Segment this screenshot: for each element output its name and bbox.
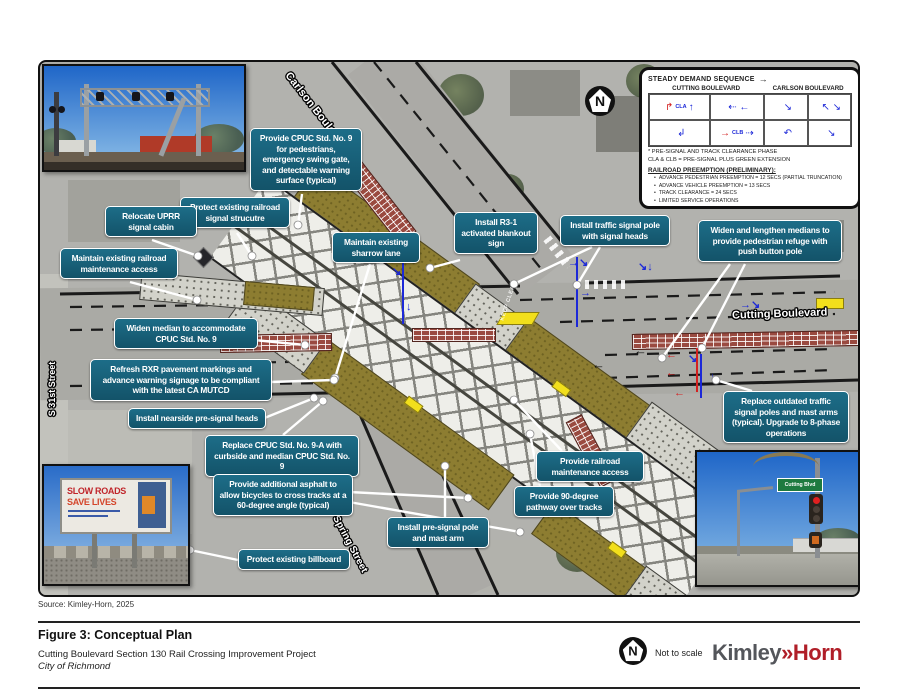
red-arrow-icon: ←: [666, 350, 677, 361]
callout-cpuc-std9-ped: Provide CPUC Std. No. 9 for pedestrians,…: [250, 128, 362, 191]
pedestrian-signal-head: [809, 532, 822, 548]
legend-cell: ↶: [764, 120, 807, 146]
billboard-fineprint: [68, 515, 108, 517]
right-arrow-icon: →: [759, 74, 768, 84]
signal-arrow-icon: ↘: [392, 267, 401, 278]
crosswalk-marking: [585, 280, 625, 289]
figure-client: City of Richmond: [38, 661, 110, 672]
legend-blue-arrow: ↶: [784, 128, 792, 139]
legend-blue-arrow: ⇢: [745, 128, 753, 139]
signal-sequence-legend: STEADY DEMAND SEQUENCE → CUTTING BOULEVA…: [639, 67, 860, 209]
legend-red-arrow: →: [720, 128, 730, 139]
north-letter: N: [585, 93, 615, 109]
gantry-signal: [166, 92, 174, 101]
logo-horn: Horn: [793, 640, 842, 665]
preemption-item: ADVANCE PEDESTRIAN PREEMPTION = 12 SECS …: [654, 175, 852, 183]
ped-signal-light: [812, 536, 819, 544]
legend-preemption-list: ADVANCE PEDESTRIAN PREEMPTION = 12 SECS …: [654, 175, 852, 205]
legend-grid: ↱CLA↑ ⇠ ← ↘ ↖ ↘ ↲ →CLB⇢ ↶ ↘: [648, 93, 852, 147]
legend-cell: ↘: [808, 120, 851, 146]
preemption-item: LIMITED SERVICE OPERATIONS: [654, 198, 852, 206]
legend-footnote-1: * PRE-SIGNAL AND TRACK CLEARANCE PHASE: [648, 149, 852, 157]
legend-cell-label: CLA: [675, 104, 686, 110]
callout-install-traffic-signal-pole: Install traffic signal pole with signal …: [560, 215, 670, 246]
legend-title: STEADY DEMAND SEQUENCE: [648, 76, 755, 83]
logo-chevrons-icon: »: [781, 640, 793, 665]
source-note: Source: Kimley-Horn, 2025: [38, 600, 134, 609]
callout-maintain-sharrow-lane: Maintain existing sharrow lane: [332, 232, 420, 263]
callout-refresh-rxr-markings: Refresh RXR pavement markings and advanc…: [90, 359, 272, 401]
billboard-text-1: SLOW ROADS: [67, 486, 126, 496]
signal-arrow-icon: →: [580, 288, 591, 299]
divider-bottom: [38, 687, 860, 689]
green-light: [813, 515, 820, 522]
crossing-signal-head: [58, 106, 65, 113]
legend-red-arrow: ↱: [665, 102, 673, 113]
north-letter: N: [619, 644, 647, 659]
leader-line: [190, 550, 238, 560]
red-arrow-icon: ←: [666, 368, 677, 379]
callout-protect-billboard: Protect existing billboard: [238, 549, 350, 570]
billboard-fineprint: [68, 510, 120, 512]
callout-additional-asphalt-bicycles: Provide additional asphalt to allow bicy…: [213, 474, 353, 516]
callout-provide-rr-maintenance-access: Provide railroad maintenance access: [536, 451, 644, 482]
yellow-light: [813, 506, 820, 513]
street-lamp-pole: [737, 490, 740, 556]
legend-blue-arrow: ↑: [689, 102, 694, 113]
crossing-signal-pole: [54, 92, 59, 156]
crossing-signal-head: [49, 106, 56, 113]
callout-pathway-over-tracks: Provide 90-degree pathway over tracks: [514, 486, 614, 517]
legend-preemption-title: RAILROAD PREEMPTION (PRELIMINARY):: [648, 167, 852, 174]
callout-install-r3-1-blankout: Install R3-1 activated blankout sign: [454, 212, 538, 254]
legend-cell: ↲: [649, 120, 710, 146]
legend-cell: ↱CLA↑: [649, 94, 710, 120]
figure-title: Figure 3: Conceptual Plan: [38, 628, 192, 642]
signal-arrow-icon: ↓: [406, 302, 412, 313]
signal-pole-line: [700, 354, 702, 398]
legend-cell-label: CLB: [732, 130, 743, 136]
legend-title-row: STEADY DEMAND SEQUENCE →: [648, 74, 852, 84]
brick-median: [412, 328, 496, 342]
traffic-signal-head: [809, 494, 823, 524]
legend-cell: →CLB⇢: [710, 120, 765, 146]
red-arrow-icon: ←: [674, 388, 685, 399]
red-light: [813, 497, 820, 504]
legend-cell: ↖ ↘: [808, 94, 851, 120]
white-building: [54, 140, 96, 152]
red-building: [140, 136, 212, 152]
legend-col-carlson: CARLSON BOULEVARD: [764, 85, 852, 92]
figure-page: KEEP CLEAR ↘ ↓ →↘ → ↘↓ ↘ →↘ ↓ ← ← ← ← ← …: [0, 0, 897, 692]
preemption-item: ADVANCE VEHICLE PREEMPTION = 13 SECS: [654, 183, 852, 191]
preemption-item: TRACK CLEARANCE = 24 SECS: [654, 190, 852, 198]
street-name-sign: Cutting Blvd: [777, 478, 823, 492]
signal-arrow-icon: ↓: [710, 372, 716, 383]
footer-north-arrow-icon: N: [619, 637, 647, 665]
legend-cell: ↘: [764, 94, 807, 120]
gravel-ground: [44, 558, 188, 584]
legend-col-cutting: CUTTING BOULEVARD: [648, 85, 764, 92]
callout-replace-cpuc-9a: Replace CPUC Std. No. 9-A with curbside …: [205, 435, 359, 477]
gantry-photo-inset: [42, 64, 246, 172]
signal-arrow-icon: ↘↓: [638, 262, 653, 273]
street-lamp-arm: [737, 486, 773, 493]
legend-footnote-2: CLA & CLB = PRE-SIGNAL PLUS GREEN EXTENS…: [648, 157, 852, 165]
lane-arrow-icon: ←: [634, 344, 647, 357]
divider-top: [38, 621, 860, 623]
legend-blue-arrow: ↘: [827, 128, 835, 139]
callout-replace-outdated-poles: Replace outdated traffic signal poles an…: [723, 391, 849, 443]
callout-maintain-rr-maintenance-access: Maintain existing railroad maintenance a…: [60, 248, 178, 279]
billboard-face: SLOW ROADS SAVE LIVES: [60, 478, 172, 534]
legend-column-headers: CUTTING BOULEVARD CARLSON BOULEVARD: [648, 85, 852, 92]
track-bed: [44, 162, 244, 170]
callout-widen-lengthen-medians: Widen and lengthen medians to provide pe…: [698, 220, 842, 262]
billboard-leg: [132, 528, 137, 568]
gantry-signal: [132, 92, 140, 101]
figure-subtitle: Cutting Boulevard Section 130 Rail Cross…: [38, 649, 316, 660]
billboard-leg: [92, 528, 97, 568]
aerial-patch: [510, 70, 580, 116]
kimley-horn-logo: Kimley»Horn: [712, 640, 842, 666]
legend-blue-arrow: ↖ ↘: [821, 102, 841, 113]
scale-note: Not to scale: [655, 648, 703, 658]
callout-install-presignal-pole: Install pre-signal pole and mast arm: [387, 517, 489, 548]
conceptual-plan-map: KEEP CLEAR ↘ ↓ →↘ → ↘↓ ↘ →↘ ↓ ← ← ← ← ← …: [38, 60, 860, 597]
callout-widen-median-cpuc9: Widen median to accommodate CPUC Std. No…: [114, 318, 258, 349]
lane-arrow-icon: ←: [592, 358, 605, 371]
logo-kimley: Kimley: [712, 640, 781, 665]
traffic-signal-photo-inset: Cutting Blvd: [695, 450, 860, 587]
legend-blue-arrow: ↲: [677, 128, 685, 139]
leader-line: [262, 398, 314, 419]
billboard-text-2: SAVE LIVES: [67, 497, 116, 507]
leader-line: [283, 401, 323, 435]
legend-blue-arrow: ↘: [784, 102, 792, 113]
callout-install-nearside-presignal: Install nearside pre-signal heads: [128, 408, 266, 429]
street-label-s31st: S 31st Street: [47, 349, 57, 429]
barrier-wall: [793, 538, 858, 552]
red-dimension-line: [696, 348, 698, 392]
signal-pole-line: [402, 262, 404, 324]
north-arrow-icon: N: [585, 86, 615, 116]
billboard-photo-inset: SLOW ROADS SAVE LIVES: [42, 464, 190, 586]
road-surface: [697, 554, 858, 585]
billboard-backpack: [142, 496, 155, 514]
callout-relocate-uprr-cabin: Relocate UPRR signal cabin: [105, 206, 197, 237]
legend-blue-arrow: ⇠ ←: [728, 102, 749, 113]
gantry-signal: [96, 92, 104, 101]
legend-cell: ⇠ ←: [710, 94, 765, 120]
signal-arrow-icon: →↘: [568, 258, 588, 269]
